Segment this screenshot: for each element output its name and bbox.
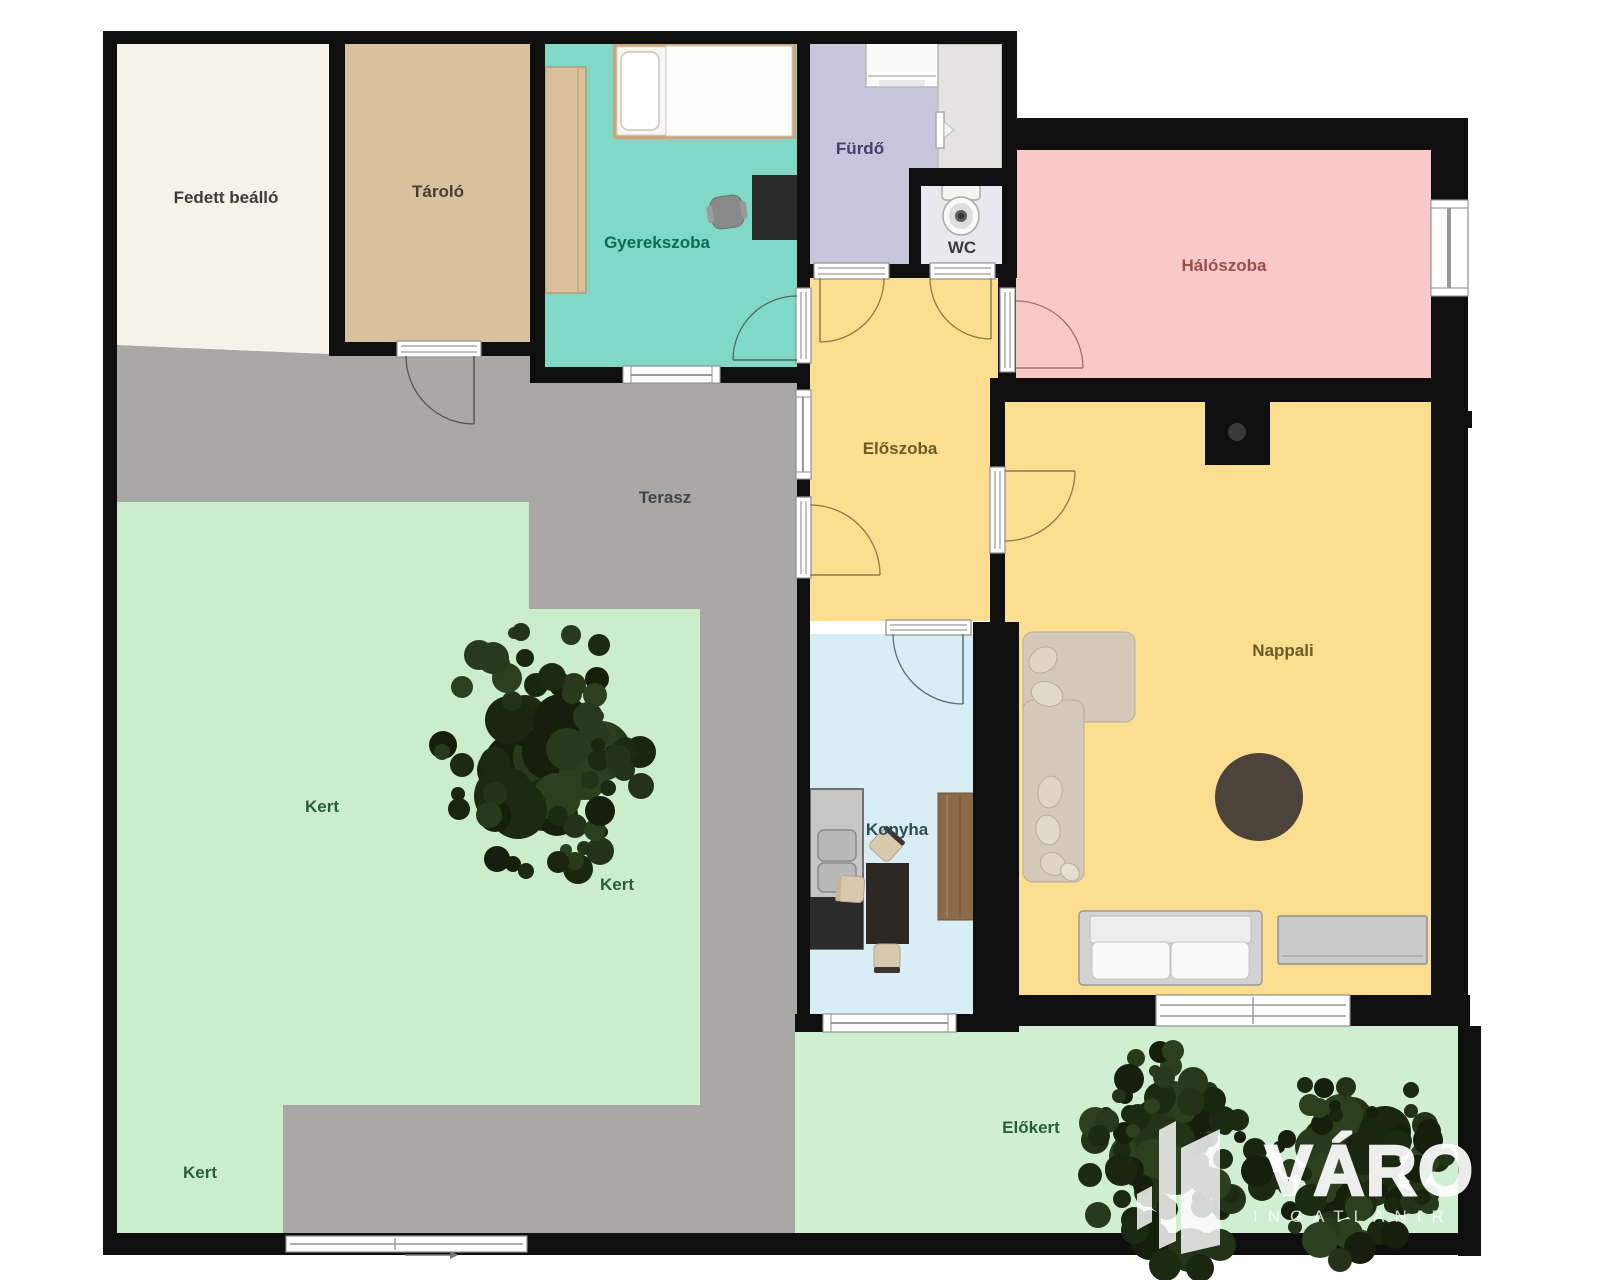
svg-text:WC: WC [948,238,976,257]
svg-text:INGATLANIR: INGATLANIR [1253,1207,1454,1226]
svg-text:Kert: Kert [305,797,339,816]
svg-text:Kert: Kert [600,875,634,894]
svg-text:VÁRO: VÁRO [1265,1132,1474,1211]
svg-text:Fedett beálló: Fedett beálló [174,188,279,207]
svg-text:Előkert: Előkert [1002,1118,1060,1137]
svg-text:Fürdő: Fürdő [836,139,884,158]
svg-text:Tároló: Tároló [412,182,464,201]
svg-text:Terasz: Terasz [639,488,692,507]
svg-text:Nappali: Nappali [1252,641,1313,660]
svg-text:Gyerekszoba: Gyerekszoba [604,233,710,252]
svg-text:Előszoba: Előszoba [863,439,938,458]
svg-text:Hálószoba: Hálószoba [1181,256,1267,275]
svg-text:Konyha: Konyha [866,820,929,839]
svg-text:Kert: Kert [183,1163,217,1182]
